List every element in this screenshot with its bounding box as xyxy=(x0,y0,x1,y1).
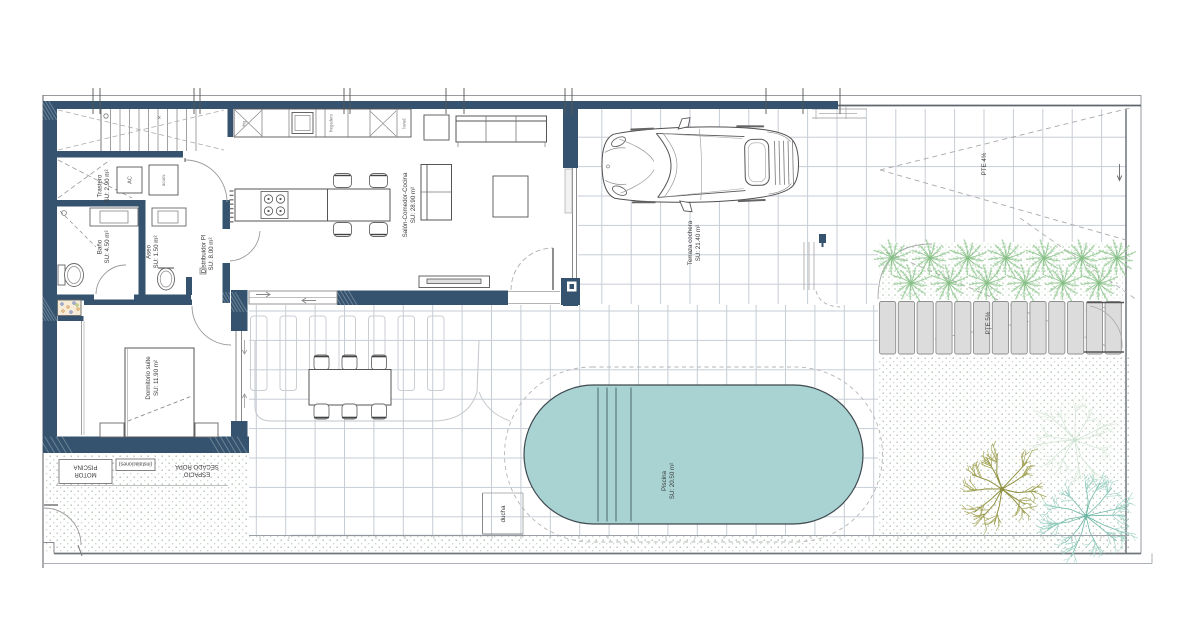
svg-text:acum.: acum. xyxy=(161,174,166,186)
svg-text:x: x xyxy=(158,115,161,121)
svg-text:Piscina: Piscina xyxy=(661,470,668,491)
svg-text:SU: 11.90 m²: SU: 11.90 m² xyxy=(153,360,160,396)
svg-text:PISCINA: PISCINA xyxy=(73,464,97,470)
svg-text:Dormitorio suite: Dormitorio suite xyxy=(145,356,152,400)
svg-text:SU: 8.00 m²: SU: 8.00 m² xyxy=(208,237,215,270)
svg-text:Terraza cochera: Terraza cochera xyxy=(687,220,694,265)
svg-text:SU: 20.50 m²: SU: 20.50 m² xyxy=(669,463,676,499)
svg-text:Distribuidor Pl: Distribuidor Pl xyxy=(200,235,207,274)
svg-text:SU: 28.90 m²: SU: 28.90 m² xyxy=(410,187,417,223)
svg-text:PTE 4%: PTE 4% xyxy=(981,152,988,175)
svg-text:Aseo: Aseo xyxy=(145,244,152,259)
svg-text:SU: 21.40 m²: SU: 21.40 m² xyxy=(695,225,702,261)
svg-text:Salón-Comedor-Cocina: Salón-Comedor-Cocina xyxy=(402,172,409,237)
svg-text:AC: AC xyxy=(127,176,133,184)
svg-text:MOTOR: MOTOR xyxy=(74,471,97,477)
svg-text:frig.: frig. xyxy=(241,120,246,127)
svg-text:fregadero: fregadero xyxy=(328,113,333,132)
svg-text:PTE 5%: PTE 5% xyxy=(985,311,992,334)
svg-text:SU: 1.50 m²: SU: 1.50 m² xyxy=(153,235,160,268)
svg-text:(instalaciones): (instalaciones) xyxy=(119,461,153,467)
svg-text:ESPACIO: ESPACIO xyxy=(184,471,211,477)
svg-text:SU: 4.50 m²: SU: 4.50 m² xyxy=(104,230,111,263)
svg-text:SECADO ROPA: SECADO ROPA xyxy=(175,463,219,469)
svg-text:Baño: Baño xyxy=(96,239,103,254)
svg-text:Trastero: Trastero xyxy=(96,174,103,197)
svg-text:ducha: ducha xyxy=(500,505,507,522)
svg-text:lavad.: lavad. xyxy=(401,117,406,128)
svg-text:SU: 2.90 m²: SU: 2.90 m² xyxy=(104,169,111,202)
